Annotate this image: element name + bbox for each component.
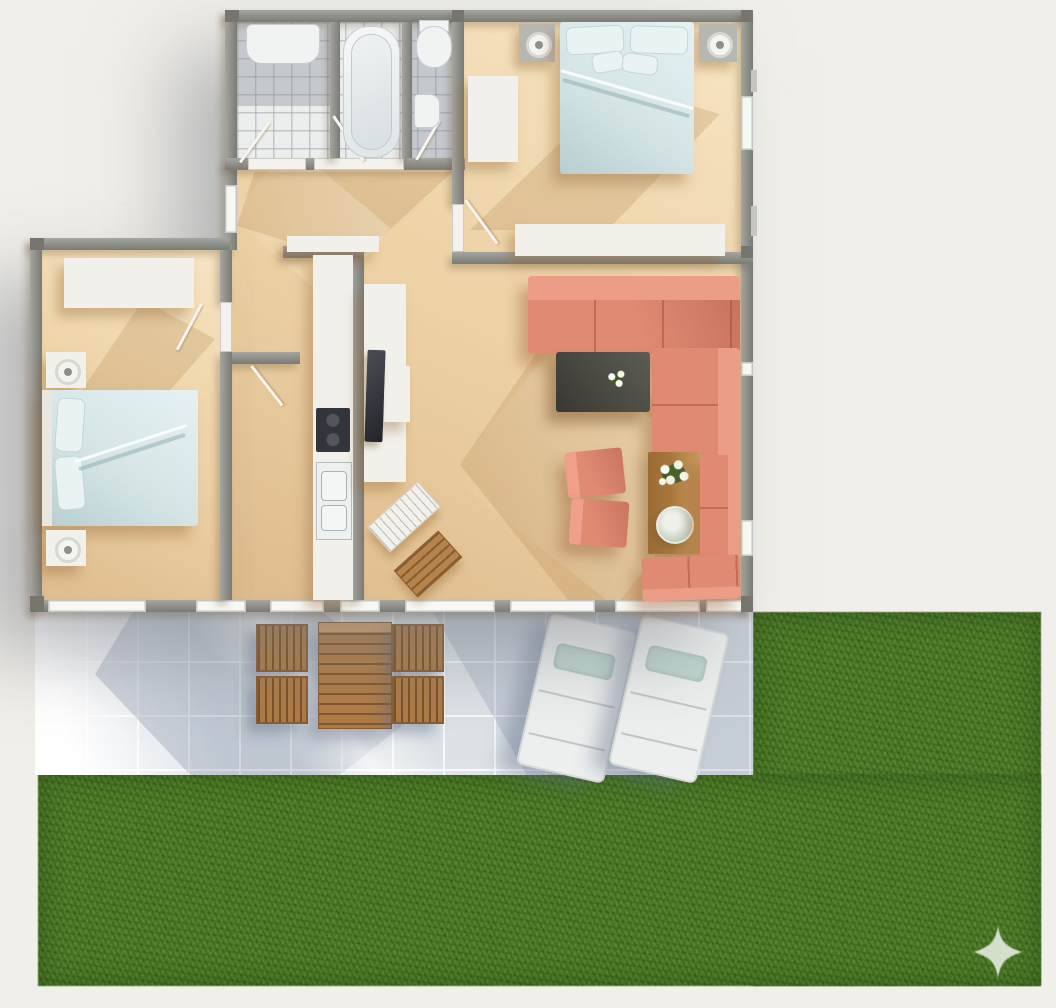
lounger-hinge-line (630, 691, 706, 710)
lamp-icon (707, 32, 733, 58)
bathtub (343, 26, 400, 158)
garden-table (318, 622, 392, 729)
window-ledge (751, 70, 757, 92)
corner-bench-horizontal (641, 554, 740, 601)
wall-wc-bedroom (452, 10, 464, 170)
hand-basin (414, 94, 440, 128)
window-right-bedroom (741, 96, 753, 150)
nightstand (46, 530, 86, 566)
lamp-icon (55, 359, 81, 385)
wall-bedroom-west (452, 170, 464, 204)
door-threshold-bedroom-main (452, 204, 464, 252)
dining-chair-1 (564, 447, 626, 499)
window-bottom-1 (196, 600, 246, 612)
corner-sofa-horizontal (528, 276, 740, 354)
lounger-pillow (552, 642, 616, 681)
bathtub-basin (351, 34, 392, 150)
lamp-icon (526, 32, 552, 58)
wall-kitchen-east (352, 255, 364, 600)
cooktop (316, 408, 350, 452)
tv-screen (364, 350, 385, 443)
garden-chair-2 (256, 676, 308, 724)
dining-chair-2 (568, 498, 629, 548)
bed-small-pillow (621, 52, 659, 77)
lamp-dot (64, 368, 72, 376)
serving-plate (656, 506, 694, 544)
lamp-dot (64, 546, 72, 554)
window-bottom-wing (48, 600, 146, 612)
nightstand (519, 24, 555, 62)
wall-joint (225, 10, 239, 22)
wall-bath-wc-divider (402, 22, 412, 158)
duvet-fold-shadow (562, 78, 690, 118)
wall-wing-left (30, 238, 42, 612)
window-right-dining (741, 520, 753, 556)
kitchen-counter-top (287, 236, 379, 252)
wall-joint (741, 596, 753, 612)
garden-chair-1 (256, 624, 308, 672)
sink-basin (321, 505, 347, 531)
wardrobe-main (515, 224, 725, 256)
sparkle-watermark-icon (974, 926, 1022, 978)
window-bottom-4 (615, 600, 700, 612)
bed-pillow (54, 455, 87, 511)
duvet-fold-shadow (78, 433, 186, 471)
nightstand (46, 352, 86, 388)
wall-hall-stub (232, 352, 300, 364)
wall-shower-bath-divider (330, 22, 340, 158)
door-threshold-bedroom-second (220, 302, 232, 352)
window-right-living (741, 362, 753, 376)
window-ledge (751, 206, 757, 236)
window-bottom-2 (270, 600, 324, 612)
tv-shelf (384, 366, 410, 422)
lamp-dot (716, 41, 724, 49)
front-door (225, 185, 237, 233)
floor-plan-scene (0, 0, 1056, 1008)
wall-joint (30, 596, 44, 612)
wall-exterior-top (225, 10, 753, 22)
sink-basin (321, 471, 347, 501)
wall-wing-east-upper (220, 250, 232, 302)
coffee-table (556, 352, 650, 412)
wardrobe-second (64, 258, 194, 308)
lamp-dot (535, 41, 543, 49)
double-bed-main (560, 22, 694, 174)
lounger-hinge-line (529, 732, 605, 751)
window-bottom-3 (340, 600, 380, 612)
garden-chair-4 (392, 676, 444, 724)
bed-pillow (630, 25, 689, 55)
corner-bench-vertical (700, 455, 740, 565)
double-bed-second (42, 390, 198, 526)
sparkle-star-path (974, 926, 1022, 978)
door-threshold-shower (248, 158, 306, 170)
wall-joint (30, 238, 44, 250)
duvet-fold (560, 69, 693, 110)
bedroom-cabinet (468, 76, 518, 162)
kitchen-sink (316, 462, 352, 540)
lounger-pillow (644, 644, 708, 683)
patio-door-2 (510, 600, 595, 612)
bed-headboard (42, 390, 52, 526)
wall-joint (741, 246, 753, 258)
lounger-hinge-line (621, 732, 697, 751)
wall-joint (452, 10, 464, 22)
toilet (416, 26, 452, 68)
corner-sofa-vertical (652, 348, 740, 455)
wall-wing-east-lower (220, 352, 232, 600)
flower-bouquet (656, 458, 692, 496)
wall-wing-top (30, 238, 230, 250)
duvet-fold (74, 424, 187, 463)
wall-joint (741, 10, 753, 22)
lawn-bottom (38, 774, 1041, 986)
coffee-table-flowers (604, 368, 630, 390)
door-threshold-bath (314, 158, 404, 170)
vanity-sink (246, 24, 320, 64)
bed-small-pillow (591, 49, 626, 74)
lamp-icon (55, 537, 81, 563)
nightstand (699, 24, 737, 62)
bed-pillow (54, 397, 86, 453)
patio-door-1 (405, 600, 495, 612)
lounger-hinge-line (539, 689, 615, 708)
garden-chair-3 (392, 624, 444, 672)
